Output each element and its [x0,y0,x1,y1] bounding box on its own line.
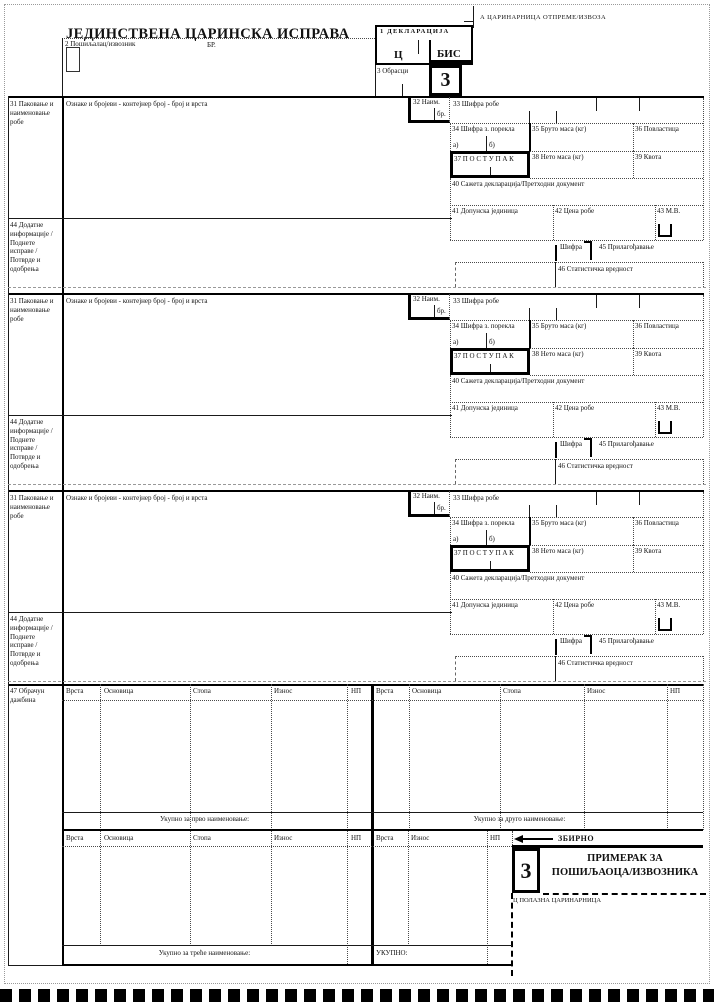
field-42-label: 42 Цена робе [555,601,594,610]
rule [633,123,634,151]
rule [8,218,452,219]
field-37-procedure-box: 37 П О С Т У П А К [450,348,530,375]
rule [530,375,703,376]
declaration-type-c: Ц [394,49,403,63]
rule [62,700,703,701]
item-block: 31 Паковање и наименовање робе Ознаке и … [0,490,714,687]
copy-number-mini-box [66,47,80,72]
field-39-label: 39 Квота [635,153,661,162]
column-header-osnovica: Основица [412,687,441,696]
field-38-label: 38 Нето маса (кг) [532,547,584,556]
rule [486,333,487,348]
field-43-label: 43 М.В. [657,207,680,216]
goods-marks-label: Ознаке и бројеви - контејнер број - број… [66,494,208,503]
field-33-label: 33 Шифра робе [453,297,499,306]
forms-box-label: 3 Обрасци [377,67,408,76]
rule [529,123,531,151]
field-42-label: 42 Цена робе [555,207,594,216]
total-first-row-label: Укупно за прво наименовање: [62,815,347,824]
goods-marks-label: Ознаке и бројеви - контејнер број - број… [66,100,208,109]
field-37-procedure-box: 37 П О С Т У П А К [450,151,530,178]
field-44-label: 44 Додатне информације / Поднете исправе… [10,418,60,471]
column-header-osnovica: Основица [104,834,133,843]
rule [655,599,656,634]
rule [703,98,704,240]
field-32-item-no-label: бр. [437,504,446,513]
field-41-label: 41 Допунска јединица [452,404,518,413]
copy-designation-line2: ПОШИЉАОЦА/ИЗВОЗНИКА [545,866,705,879]
rule [464,21,473,22]
rule [530,572,703,573]
column-header-vrsta: Врста [376,687,394,696]
column-header-stopa: Стопа [503,687,521,696]
rule [639,98,640,111]
rule [490,561,491,569]
field-44-label: 44 Додатне информације / Поднете исправе… [10,615,60,668]
field-40-label: 40 Сажета декларација/Претходни документ [452,180,584,189]
rule [490,364,491,372]
rule [555,262,556,287]
rule [408,831,409,946]
jci-form-page: ЈЕДИНСТВЕНА ЦАРИНСКА ИСПРАВА А ЦАРИНАРНИ… [0,0,714,1005]
rule [556,308,557,320]
rule [434,305,435,317]
rule [633,151,634,178]
rule [655,205,656,240]
column-header-iznos: Износ [587,687,605,696]
field-40-label: 40 Сажета декларација/Претходни документ [452,377,584,386]
rule [455,656,456,681]
field-32-box: 32 Наим. бр. [408,491,450,517]
rule [347,684,348,830]
rule [667,684,668,830]
rule [455,262,456,287]
rule [450,123,703,124]
rule [633,545,634,572]
column-header-iznos: Износ [274,834,292,843]
field-31-label: 31 Паковање и наименовање робе [10,494,60,520]
rule [418,40,419,54]
field-40-label: 40 Сажета декларација/Претходни документ [452,574,584,583]
rule [703,684,704,830]
rule [62,945,512,946]
field-33-label: 33 Шифра робе [453,100,499,109]
item-block: 31 Паковање и наименовање робе Ознаке и … [0,96,714,293]
perforation-strip [0,989,714,1002]
rule [530,178,703,179]
rule [62,684,64,966]
field-34-label: 34 Шифра з. порекла [452,125,515,134]
grand-total-label: УКУПНО: [376,949,408,958]
origin-code-a-label: а) [453,535,458,544]
field-38-label: 38 Нето маса (кг) [532,153,584,162]
rule [596,295,597,308]
rule [371,684,374,966]
field-43-code-label: Шифра [560,440,582,449]
rule [8,684,9,966]
rule [62,829,703,831]
rule [62,846,512,847]
field-43-code-label: Шифра [560,243,582,252]
rule [529,308,530,320]
rule [590,438,592,457]
field-37-procedure-box: 37 П О С Т У П А К [450,545,530,572]
rule [703,492,704,634]
rule [455,459,703,460]
rule [450,599,703,600]
rule [455,459,456,484]
valuation-code-bracket [658,224,672,237]
field-35-label: 35 Бруто маса (кг) [532,125,586,134]
field-39-label: 39 Квота [635,547,661,556]
rule [512,845,703,848]
rule [555,245,557,261]
rule [8,293,9,490]
field-36-label: 36 Повластица [635,125,679,134]
summary-arrow-icon [514,835,523,843]
field-43-code-label: Шифра [560,637,582,646]
field-37-label: 37 П О С Т У П А К [454,155,514,164]
field-38-label: 38 Нето маса (кг) [532,350,584,359]
rule [409,684,410,830]
field-32-label: 32 Наим. [413,295,440,304]
field-32-item-no-label: бр. [437,110,446,119]
rule [8,415,452,416]
rule [633,348,634,375]
field-35-label: 35 Бруто маса (кг) [532,322,586,331]
column-header-vrsta: Врста [66,687,84,696]
rule [271,831,272,946]
rule [450,205,703,206]
rule [703,262,704,287]
rule [486,530,487,545]
origin-code-a-label: а) [453,338,458,347]
rule [529,505,530,517]
box-a-label: А ЦАРИНАРНИЦА ОТПРЕМЕ/ИЗВОЗА [480,14,606,22]
rule [62,812,703,813]
goods-marks-label: Ознаке и бројеви - контејнер број - број… [66,297,208,306]
summary-label: ЗБИРНО [558,834,594,844]
rule [450,634,703,635]
field-41-label: 41 Допунска јединица [452,207,518,216]
rule [190,684,191,830]
rule [596,492,597,505]
rule [450,517,703,518]
field-35-label: 35 Бруто маса (кг) [532,519,586,528]
rule [553,402,554,437]
field-46-label: 46 Статистичка вредност [558,265,633,274]
rule [639,295,640,308]
rule [8,293,704,295]
rule [8,681,706,682]
field-45-label: 45 Прилагођавање [599,637,654,646]
field-37-label: 37 П О С Т У П А К [454,352,514,361]
box-c-label: Ц ПОЛАЗНА ЦАРИНАРНИЦА [513,897,601,905]
rule [8,612,452,613]
rule [8,684,704,686]
field-42-label: 42 Цена робе [555,404,594,413]
rule [100,684,101,830]
rule [8,96,9,293]
field-32-box: 32 Наим. бр. [408,97,450,123]
field-39-label: 39 Квота [635,350,661,359]
total-second-row-label: Укупно за друго наименовање: [372,815,667,824]
field-34-label: 34 Шифра з. порекла [452,519,515,528]
rule [555,459,556,484]
origin-code-b-label: б) [489,141,495,150]
rule [655,402,656,437]
rule [62,96,64,293]
rule [190,831,191,946]
column-header-vrsta: Врста [376,834,394,843]
valuation-code-bracket [658,618,672,631]
rule [529,517,531,545]
origin-code-b-label: б) [489,535,495,544]
rule [584,684,585,830]
rule [450,320,451,348]
rule [8,490,9,687]
field-37-label: 37 П О С Т У П А К [454,549,514,558]
rule [450,240,703,241]
rule [450,402,703,403]
field-36-label: 36 Повластица [635,519,679,528]
rule [633,517,634,545]
rule [703,459,704,484]
rule [434,108,435,120]
rule [523,838,553,840]
box-2-number-label: БР. [207,41,216,50]
copy-number-box-bottom: 3 [512,848,540,893]
rule [8,965,62,966]
field-32-label: 32 Наим. [413,492,440,501]
rule [556,111,557,123]
rule [530,151,703,152]
rule [8,490,704,492]
rule [450,437,703,438]
origin-code-a-label: а) [453,141,458,150]
column-header-stopa: Стопа [193,687,211,696]
rule [455,656,703,657]
copy-number-box-top: 3 [429,65,462,96]
rule [62,38,375,39]
field-32-label: 32 Наим. [413,98,440,107]
column-header-iznos: Износ [274,687,292,696]
rule [450,178,451,240]
rule [62,38,63,96]
origin-code-b-label: б) [489,338,495,347]
rule [553,205,554,240]
field-33-label: 33 Шифра робе [453,494,499,503]
field-45-label: 45 Прилагођавање [599,440,654,449]
rule [486,136,487,151]
rule [62,964,512,966]
rule [402,84,403,96]
rule [553,599,554,634]
field-43-label: 43 М.В. [657,404,680,413]
column-header-osnovica: Основица [104,687,133,696]
rule [434,502,435,514]
rule [703,295,704,437]
rule [62,293,64,490]
field-31-label: 31 Паковање и наименовање робе [10,297,60,323]
rule [556,505,557,517]
rule [450,123,451,151]
rule [529,320,531,348]
rule [450,375,451,437]
rule [271,684,272,830]
column-header-np: НП [351,834,361,843]
rule [530,545,703,546]
rule [543,893,706,895]
field-43-label: 43 М.В. [657,601,680,610]
field-46-label: 46 Статистичка вредност [558,462,633,471]
rule [639,492,640,505]
field-45-label: 45 Прилагођавање [599,243,654,252]
rule [596,98,597,111]
copy-designation-line1: ПРИМЕРАК ЗА [545,852,705,865]
column-header-vrsta: Врста [66,834,84,843]
rule [8,287,706,288]
column-header-stopa: Стопа [193,834,211,843]
rule [450,517,451,545]
field-46-label: 46 Статистичка вредност [558,659,633,668]
rule [450,572,451,634]
rule [455,262,703,263]
field-34-label: 34 Шифра з. порекла [452,322,515,331]
rule [530,348,703,349]
rule [429,60,471,63]
rule [473,6,474,28]
column-header-np: НП [670,687,680,696]
declaration-label: 1 ДЕКЛАРАЦИЈА [380,28,449,36]
column-header-iznos: Износ [411,834,429,843]
total-third-row-label: Укупно за треће наименовање: [62,949,347,958]
declaration-box: 1 ДЕКЛАРАЦИЈА Ц БИС [375,25,473,65]
field-32-box: 32 Наим. бр. [408,294,450,320]
rule [490,167,491,175]
rule [555,442,557,458]
field-36-label: 36 Повластица [635,322,679,331]
rule [590,635,592,654]
item-block: 31 Паковање и наименовање робе Ознаке и … [0,293,714,490]
field-47-label: 47 Обрачун дажбина [10,687,60,705]
column-header-np: НП [351,687,361,696]
field-41-label: 41 Допунска јединица [452,601,518,610]
field-44-label: 44 Додатне информације / Поднете исправе… [10,221,60,274]
rule [529,111,530,123]
rule [62,490,64,687]
valuation-code-bracket [658,421,672,434]
rule [590,241,592,260]
field-32-item-no-label: бр. [437,307,446,316]
field-31-label: 31 Паковање и наименовање робе [10,100,60,126]
rule [450,320,703,321]
rule [703,656,704,681]
rule [555,656,556,681]
rule [8,484,706,485]
rule [8,96,704,98]
rule [633,320,634,348]
rule [500,684,501,830]
column-header-np: НП [490,834,500,843]
rule [555,639,557,655]
rule [100,831,101,946]
